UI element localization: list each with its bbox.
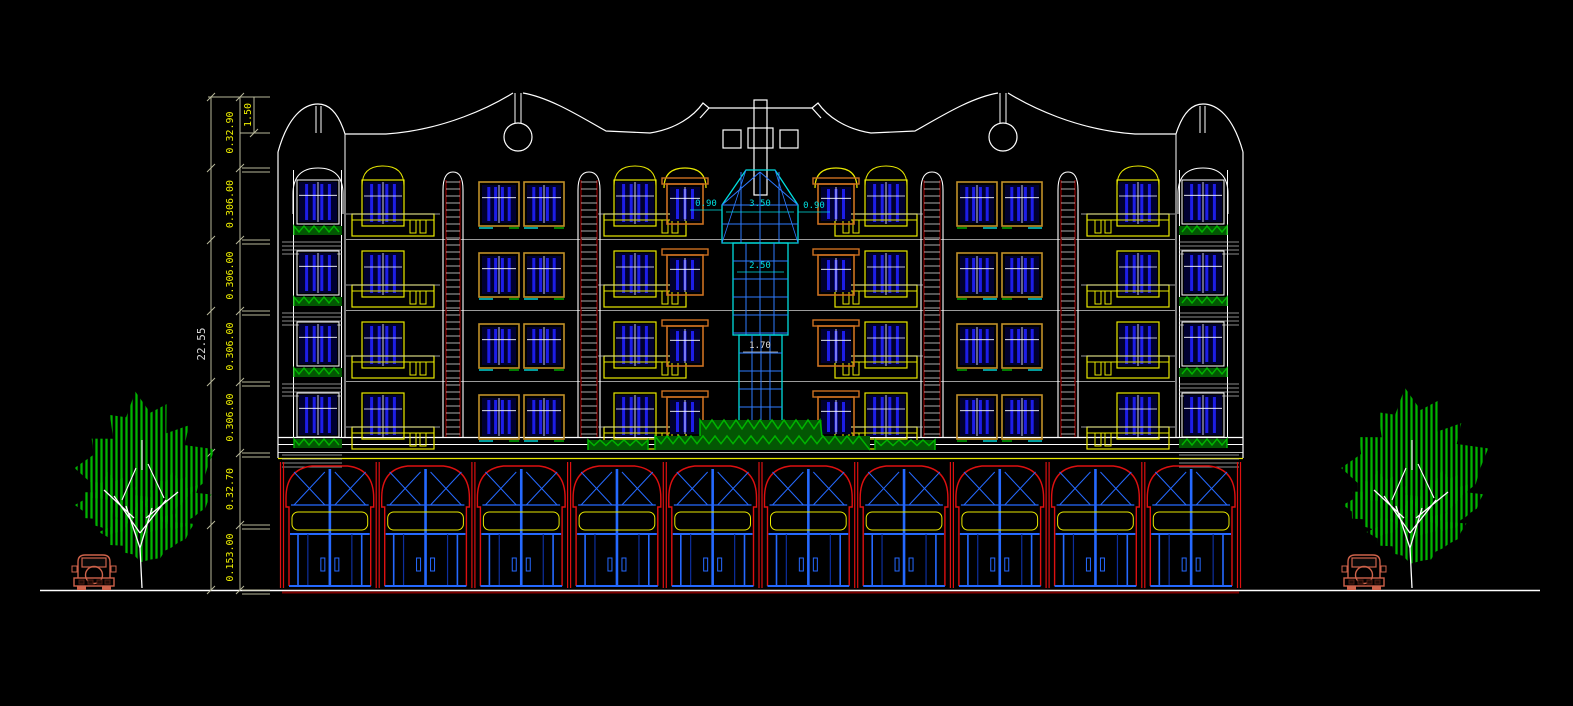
facade-windows-right bbox=[813, 166, 1239, 467]
cad-drawing-stage: 0.32.900.306.000.306.000.306.000.306.000… bbox=[0, 0, 1573, 706]
dim-segment-label: 0.32.90 bbox=[225, 111, 236, 153]
shop-bay bbox=[286, 466, 374, 586]
dimension-chain: 0.32.900.306.000.306.000.306.000.306.000… bbox=[195, 93, 270, 594]
dim-segment-label: 0.32.70 bbox=[225, 468, 236, 510]
facade-windows-left bbox=[282, 166, 708, 467]
dim-total-label: 22.55 bbox=[195, 327, 208, 360]
building-elevation-canvas: 0.32.900.306.000.306.000.306.000.306.000… bbox=[0, 0, 1573, 706]
shop-bay bbox=[477, 466, 565, 586]
shop-bay bbox=[573, 466, 661, 586]
shop-bay bbox=[1147, 466, 1235, 586]
shop-bay bbox=[765, 466, 853, 586]
car-left bbox=[72, 555, 116, 590]
shop-bay bbox=[669, 466, 757, 586]
shop-bay bbox=[382, 466, 470, 586]
dim-parapet-label: 1.50 bbox=[243, 103, 254, 127]
shop-bay bbox=[860, 466, 948, 586]
shop-bay bbox=[956, 466, 1044, 586]
dim-segment-label: 0.153.00 bbox=[225, 533, 236, 581]
tower-dim-left: 0.90 bbox=[695, 199, 717, 209]
center-glass-tower bbox=[722, 170, 798, 445]
storefront-row bbox=[281, 462, 1241, 593]
tower-dim-right: 0.90 bbox=[803, 201, 825, 211]
car-right bbox=[1342, 555, 1386, 590]
dim-segment-label: 0.306.00 bbox=[225, 393, 236, 441]
dim-segment-label: 0.306.00 bbox=[225, 251, 236, 299]
tower-dim-lower: 1.70 bbox=[749, 341, 771, 351]
shop-bay bbox=[1052, 466, 1140, 586]
tower-dim-mid: 2.50 bbox=[749, 261, 771, 271]
tower-dim-top: 3.50 bbox=[749, 199, 771, 209]
dim-segment-label: 0.306.00 bbox=[225, 180, 236, 228]
dim-segment-label: 0.306.00 bbox=[225, 322, 236, 370]
